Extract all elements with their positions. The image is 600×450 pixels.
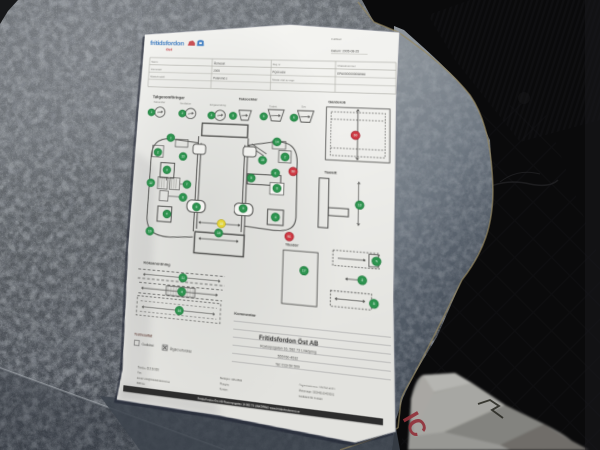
svg-text:Toalett: Toalett <box>269 105 277 109</box>
svg-text:60: 60 <box>354 133 358 138</box>
svg-text:Takventiler: Takventiler <box>154 101 166 105</box>
svg-text:Datum: 2005-08-25: Datum: 2005-08-25 <box>331 49 360 54</box>
svg-text:Namn: Namn <box>151 62 158 64</box>
svg-text:Fullblad: Fullblad <box>331 38 342 41</box>
svg-text:öst: öst <box>166 46 173 51</box>
svg-text:PQG1424: PQG1424 <box>272 70 286 75</box>
svg-text:Fax:: Fax: <box>137 372 142 375</box>
svg-text:EPA0000000008946: EPA0000000008946 <box>337 71 366 76</box>
svg-text:Märke/modell: Märke/modell <box>150 75 165 79</box>
svg-text:Polarvind s: Polarvind s <box>213 76 228 81</box>
svg-text:Årsmodell: Årsmodell <box>151 68 162 71</box>
svg-text:Garderob: Garderob <box>328 100 346 105</box>
svg-text:Ventilation: Ventilation <box>180 102 192 106</box>
svg-text:Taksocklar: Taksocklar <box>238 97 258 102</box>
svg-text:Chassinummer: Chassinummer <box>337 65 355 69</box>
svg-text:Reg nr: Reg nr <box>273 63 281 66</box>
svg-text:Toalett: Toalett <box>324 170 338 175</box>
svg-text:2005: 2005 <box>213 68 220 72</box>
svg-text:13: 13 <box>358 203 362 208</box>
